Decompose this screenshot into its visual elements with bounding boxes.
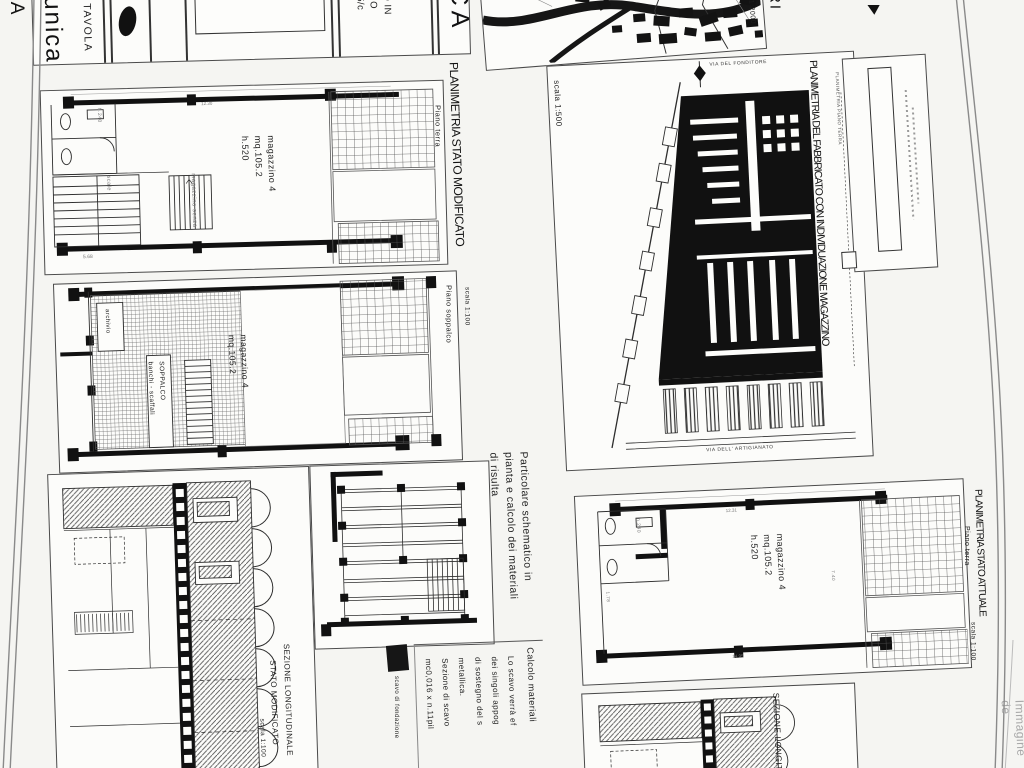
section-attuale-title: SEZIONE LONGIT — [770, 693, 783, 768]
archive-label: archivio — [103, 309, 111, 334]
floor-label-piano-soppalco: Piano soppalco — [444, 285, 453, 343]
titleblock-fragment-2: NO — [366, 0, 377, 9]
mezzanine-label: SOPPALCO banchi - scaffali — [145, 361, 169, 415]
interior-lines — [64, 527, 180, 726]
titleblock-divider — [102, 0, 106, 63]
storage-shelving — [53, 175, 141, 247]
section-modificato-frame: SEZIONE LONGITUDINALE STATO MODIFICATO s… — [47, 466, 319, 768]
title-stato-attuale: PLANIMETRIA STATO ATTUALE — [972, 489, 988, 616]
calc-text-block: Calcolo materiali Lo scavo verrà ef dei … — [414, 640, 547, 768]
titleblock-divider — [330, 0, 334, 57]
titleblock-fragment-3: 5/c — [353, 0, 364, 10]
section-scale: scala 1:100 — [258, 718, 267, 757]
parking-stalls — [659, 372, 825, 434]
tavola-label: TAVOLA — [81, 3, 94, 52]
scale-attuale: scala 1:100 — [969, 622, 976, 661]
stamp-box — [842, 54, 939, 273]
particolare-title: Particolare schematico in pianta e calco… — [485, 451, 535, 600]
hatched-wall — [186, 481, 259, 768]
titleblock-divider — [337, 0, 341, 57]
stamp-box-bar — [867, 67, 902, 252]
beam-grid — [341, 486, 465, 622]
illegible-text-line — [912, 107, 920, 203]
titleblock-divider — [184, 0, 188, 61]
titleblock-fragment-1: O IN — [380, 0, 391, 15]
north-arrow-icon — [693, 61, 706, 88]
titleblock-divider — [148, 0, 152, 62]
staircase — [427, 558, 465, 611]
calc-title: Calcolo materiali — [525, 647, 538, 722]
title-block-strip: unica TAVOLA O IN NO 5/c CA — [31, 0, 471, 66]
staircase — [185, 360, 214, 445]
tiled-areas — [861, 495, 969, 667]
stamp-box-notch — [841, 251, 857, 269]
particolare-frame — [309, 460, 494, 649]
stairs-label: scale — [105, 175, 112, 191]
title-stato-modificato: PLANIMETRIA STATO MODIFICATO — [446, 62, 466, 247]
calc-body: Lo scavo verrà ef dei singoli appog di s… — [419, 656, 520, 730]
bath-height-label: h.240 — [634, 518, 640, 533]
ink-stamp-blob — [116, 5, 138, 38]
walls — [589, 491, 894, 664]
room-label: magazzino 4 mq.105.2 h.520 — [238, 135, 278, 193]
titleblock-ca-right: CA — [444, 0, 474, 33]
hatched-slab — [63, 485, 174, 528]
dimension-bottom: 5.68 — [83, 254, 93, 260]
room-label: magazzino 4 mq.105.2 h.520 — [747, 533, 789, 591]
dimension-right: 7.40 — [831, 570, 837, 581]
tiled-areas — [331, 89, 439, 264]
storage-label: magazzino senza — [189, 173, 197, 227]
bathroom-fixtures — [51, 103, 117, 175]
section-attuale-drawing — [582, 684, 855, 768]
edge-fragment-ri: RI — [766, 0, 783, 11]
tiled-areas — [340, 278, 433, 445]
legend-label: scavo di fondazione — [392, 676, 399, 739]
scanned-drawing-sheet: unica TAVOLA O IN NO 5/c CA CA RI — [0, 0, 1024, 768]
titleblock-empty-box — [193, 0, 325, 34]
hatched-slab — [599, 702, 702, 742]
particolare-drawing — [310, 461, 491, 646]
pen-mark-icon — [867, 0, 882, 15]
watermark-text: Immagine de — [998, 700, 1024, 768]
dimension-top: 12.31 — [726, 508, 737, 514]
plan-attuale-frame: magazzino 4 mq.105.2 h.520 h.240 1.78 12… — [574, 478, 972, 685]
plan-modificato-soppalco-drawing — [54, 271, 460, 470]
titleblock-divider — [109, 0, 113, 63]
scale-stato-modificato: scala 1:100 — [463, 287, 470, 326]
floor-label-piano-terra: Piano terra — [433, 105, 442, 147]
plan-modificato-terra-frame: magazzino 4 mq.105.2 h.520 h.240 magazzi… — [40, 80, 449, 276]
legend-swatch-scavo — [386, 644, 409, 672]
bath-height-label: h.240 — [95, 108, 101, 123]
map-scale-label: la 1:2000 — [746, 0, 757, 25]
room-label: magazzino 4 mq.105.2 — [226, 334, 252, 388]
plan-modificato-soppalco-frame: archivio SOPPALCO banchi - scaffali maga… — [53, 270, 463, 473]
floor-label-attuale: Piano terra — [962, 526, 970, 566]
mezzanine-hatch — [90, 291, 245, 450]
section-attuale-frame: SEZIONE LONGIT — [581, 683, 859, 768]
titleblock-divider — [430, 0, 434, 54]
tavola-value: unica — [38, 0, 67, 64]
dimension-top: 12.30 — [201, 101, 212, 106]
dimension-left: 1.78 — [605, 591, 611, 602]
edge-fragment-ca: CA — [5, 0, 27, 16]
titleblock-divider — [436, 0, 440, 54]
dimension-bottom: 14.95 — [732, 653, 743, 659]
